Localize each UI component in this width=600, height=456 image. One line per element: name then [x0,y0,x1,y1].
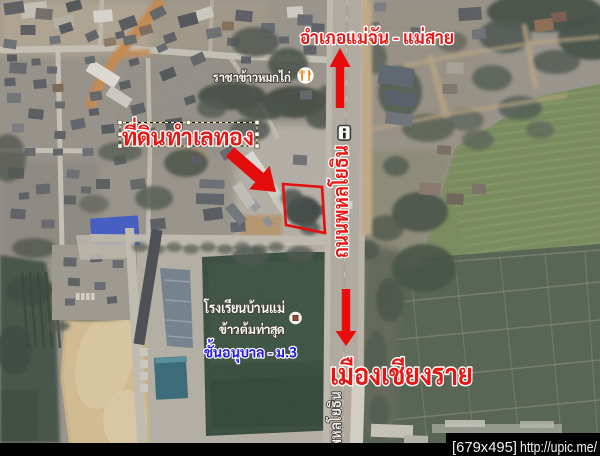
svg-text:[679x495]: [679x495] [452,439,517,456]
svg-text:http://upic.me/: http://upic.me/ [520,439,598,456]
